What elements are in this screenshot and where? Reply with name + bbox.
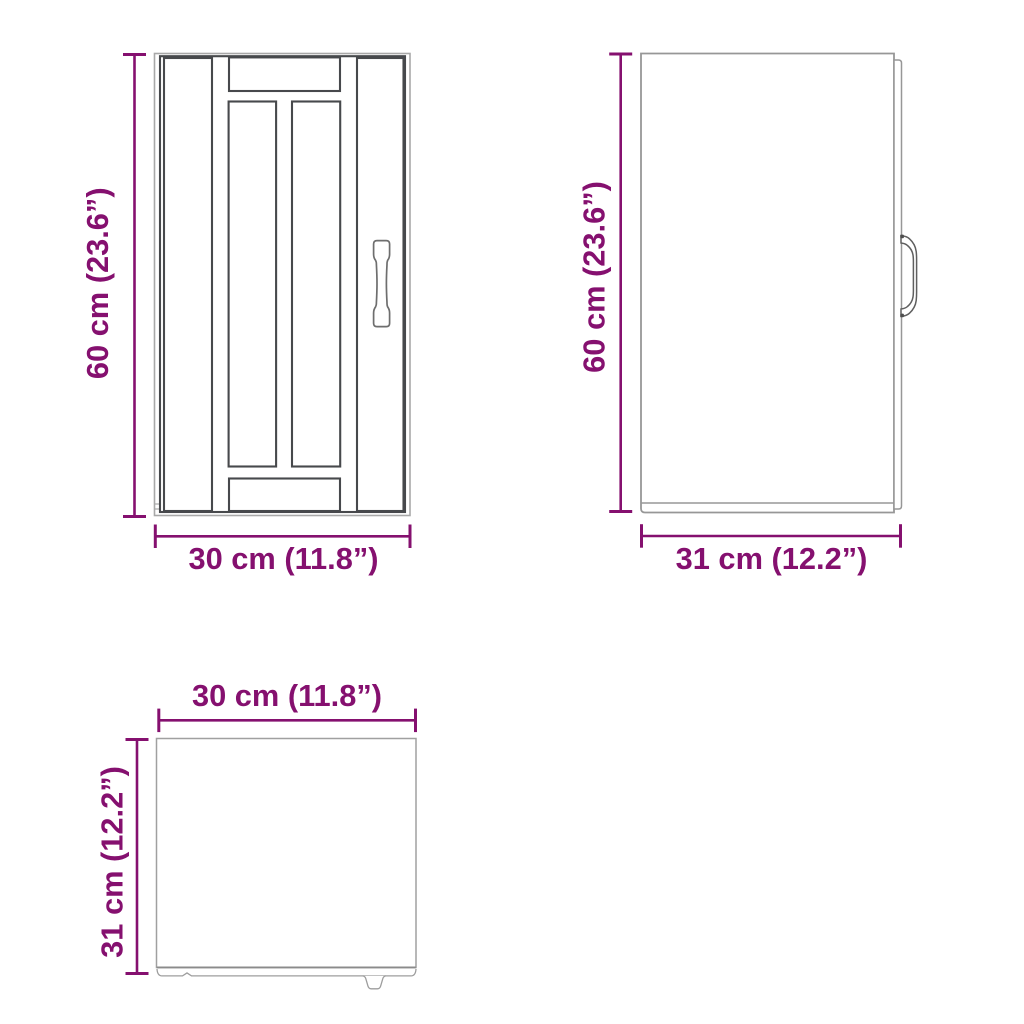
svg-text:30 cm (11.8”): 30 cm (11.8”)	[188, 541, 378, 576]
svg-text:60 cm (23.6”): 60 cm (23.6”)	[576, 181, 611, 373]
svg-text:31 cm (12.2”): 31 cm (12.2”)	[95, 766, 130, 958]
svg-text:60 cm (23.6”): 60 cm (23.6”)	[80, 187, 115, 379]
svg-text:30 cm (11.8”): 30 cm (11.8”)	[192, 678, 382, 713]
svg-text:31 cm (12.2”): 31 cm (12.2”)	[676, 541, 868, 576]
